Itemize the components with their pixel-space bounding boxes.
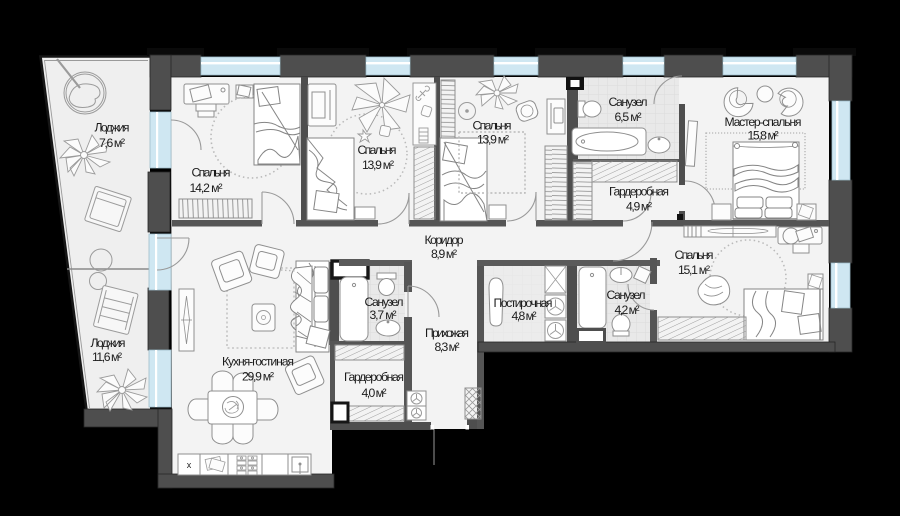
svg-text:Кухня-гостиная: Кухня-гостиная <box>222 355 294 369</box>
svg-text:7,6 м²: 7,6 м² <box>99 136 125 150</box>
svg-text:4,8 м²: 4,8 м² <box>512 309 537 323</box>
svg-text:8,9 м²: 8,9 м² <box>431 247 457 261</box>
svg-text:x: x <box>187 460 192 470</box>
svg-text:Прихожая: Прихожая <box>425 326 469 340</box>
svg-text:Санузел: Санузел <box>607 288 646 302</box>
svg-text:15,8 м²: 15,8 м² <box>748 129 779 143</box>
svg-text:Постирочная: Постирочная <box>494 296 553 310</box>
svg-text:3,7 м²: 3,7 м² <box>370 308 397 322</box>
svg-text:Санузел: Санузел <box>365 295 404 309</box>
svg-text:8,3 м²: 8,3 м² <box>435 340 460 354</box>
svg-text:Спальня: Спальня <box>473 119 512 133</box>
svg-text:Лоджия: Лоджия <box>95 121 130 135</box>
svg-text:11,6 м²: 11,6 м² <box>92 350 122 364</box>
svg-text:15,1 м²: 15,1 м² <box>678 263 710 277</box>
svg-text:4,9 м²: 4,9 м² <box>626 200 652 214</box>
svg-text:Спальня: Спальня <box>358 143 397 157</box>
svg-text:6,5 м²: 6,5 м² <box>615 110 642 124</box>
svg-text:4,0 м²: 4,0 м² <box>362 386 387 400</box>
svg-text:Гардеробная: Гардеробная <box>344 370 404 384</box>
svg-text:Лоджия: Лоджия <box>91 336 126 350</box>
svg-text:Гардеробная: Гардеробная <box>609 185 669 199</box>
svg-text:13,9 м²: 13,9 м² <box>477 133 509 147</box>
svg-text:14,2 м²: 14,2 м² <box>190 181 223 195</box>
svg-text:Санузел: Санузел <box>609 95 648 109</box>
svg-text:29,9 м²: 29,9 м² <box>242 370 274 384</box>
svg-text:4,2 м²: 4,2 м² <box>615 303 640 317</box>
svg-text:Коридор: Коридор <box>425 233 464 247</box>
svg-text:Спальня: Спальня <box>192 166 231 180</box>
svg-text:Спальня: Спальня <box>675 248 714 262</box>
svg-text:Мастер-спальня: Мастер-спальня <box>725 115 802 129</box>
svg-text:13,9 м²: 13,9 м² <box>362 158 394 172</box>
